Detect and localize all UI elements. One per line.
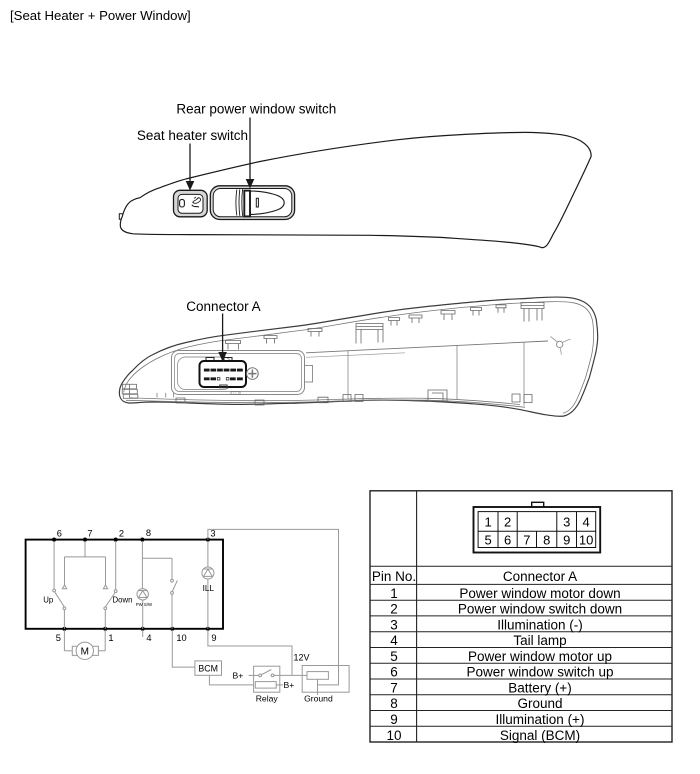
svg-text:Seat heater switch: Seat heater switch bbox=[137, 128, 248, 143]
svg-text:Signal (BCM): Signal (BCM) bbox=[500, 728, 580, 743]
svg-text:9: 9 bbox=[563, 532, 570, 547]
svg-text:Battery (+): Battery (+) bbox=[508, 681, 571, 696]
svg-text:8: 8 bbox=[146, 528, 151, 538]
svg-text:5: 5 bbox=[56, 633, 61, 643]
svg-text:[Seat Heater + Power Window]: [Seat Heater + Power Window] bbox=[10, 8, 191, 23]
svg-text:8: 8 bbox=[390, 696, 398, 711]
svg-text:Tail lamp: Tail lamp bbox=[513, 633, 566, 648]
svg-text:3: 3 bbox=[390, 617, 398, 632]
svg-text:Illumination (-): Illumination (-) bbox=[497, 617, 583, 632]
svg-text:12V: 12V bbox=[294, 653, 310, 663]
svg-text:Power window motor up: Power window motor up bbox=[468, 649, 612, 664]
svg-text:2: 2 bbox=[119, 528, 124, 538]
svg-text:Rear power window switch: Rear power window switch bbox=[176, 102, 336, 117]
svg-text:B+: B+ bbox=[284, 680, 295, 690]
svg-text:2: 2 bbox=[504, 514, 511, 529]
svg-text:1: 1 bbox=[484, 514, 491, 529]
svg-text:6: 6 bbox=[57, 528, 62, 538]
svg-text:9: 9 bbox=[390, 712, 398, 727]
svg-text:10: 10 bbox=[579, 532, 593, 547]
svg-text:5: 5 bbox=[484, 532, 491, 547]
svg-text:Down: Down bbox=[113, 595, 133, 604]
svg-text:6: 6 bbox=[390, 665, 398, 680]
svg-text:3: 3 bbox=[563, 514, 570, 529]
svg-text:Pin No.: Pin No. bbox=[372, 569, 416, 584]
svg-text:4: 4 bbox=[582, 514, 589, 529]
svg-text:4: 4 bbox=[146, 633, 151, 643]
svg-text:2: 2 bbox=[390, 602, 398, 617]
svg-text:9: 9 bbox=[211, 633, 216, 643]
svg-text:Illumination (+): Illumination (+) bbox=[496, 712, 585, 727]
svg-text:Ground: Ground bbox=[304, 694, 333, 704]
svg-text:10: 10 bbox=[386, 728, 401, 743]
svg-text:Up: Up bbox=[43, 595, 54, 604]
svg-text:8: 8 bbox=[543, 532, 550, 547]
svg-text:Power window switch up: Power window switch up bbox=[466, 665, 613, 680]
svg-text:PW S/W: PW S/W bbox=[136, 602, 153, 607]
svg-text:Power window switch down: Power window switch down bbox=[458, 602, 622, 617]
svg-text:4: 4 bbox=[390, 633, 398, 648]
svg-text:B+: B+ bbox=[233, 671, 244, 681]
svg-text:6: 6 bbox=[504, 532, 511, 547]
svg-text:1: 1 bbox=[390, 586, 398, 601]
svg-text:Power window motor down: Power window motor down bbox=[459, 586, 620, 601]
svg-text:10: 10 bbox=[176, 633, 186, 643]
svg-text:7: 7 bbox=[523, 532, 530, 547]
svg-text:5: 5 bbox=[390, 649, 398, 664]
svg-text:Relay: Relay bbox=[256, 694, 279, 704]
svg-text:ILL: ILL bbox=[203, 584, 215, 593]
svg-text:7: 7 bbox=[87, 528, 92, 538]
svg-text:Connector A: Connector A bbox=[503, 569, 577, 584]
svg-text:Connector A: Connector A bbox=[186, 299, 260, 314]
svg-text:M: M bbox=[81, 647, 89, 658]
svg-text:7: 7 bbox=[390, 681, 398, 696]
svg-text:Ground: Ground bbox=[517, 696, 562, 711]
svg-text:1: 1 bbox=[108, 633, 113, 643]
svg-text:BCM: BCM bbox=[198, 663, 218, 673]
